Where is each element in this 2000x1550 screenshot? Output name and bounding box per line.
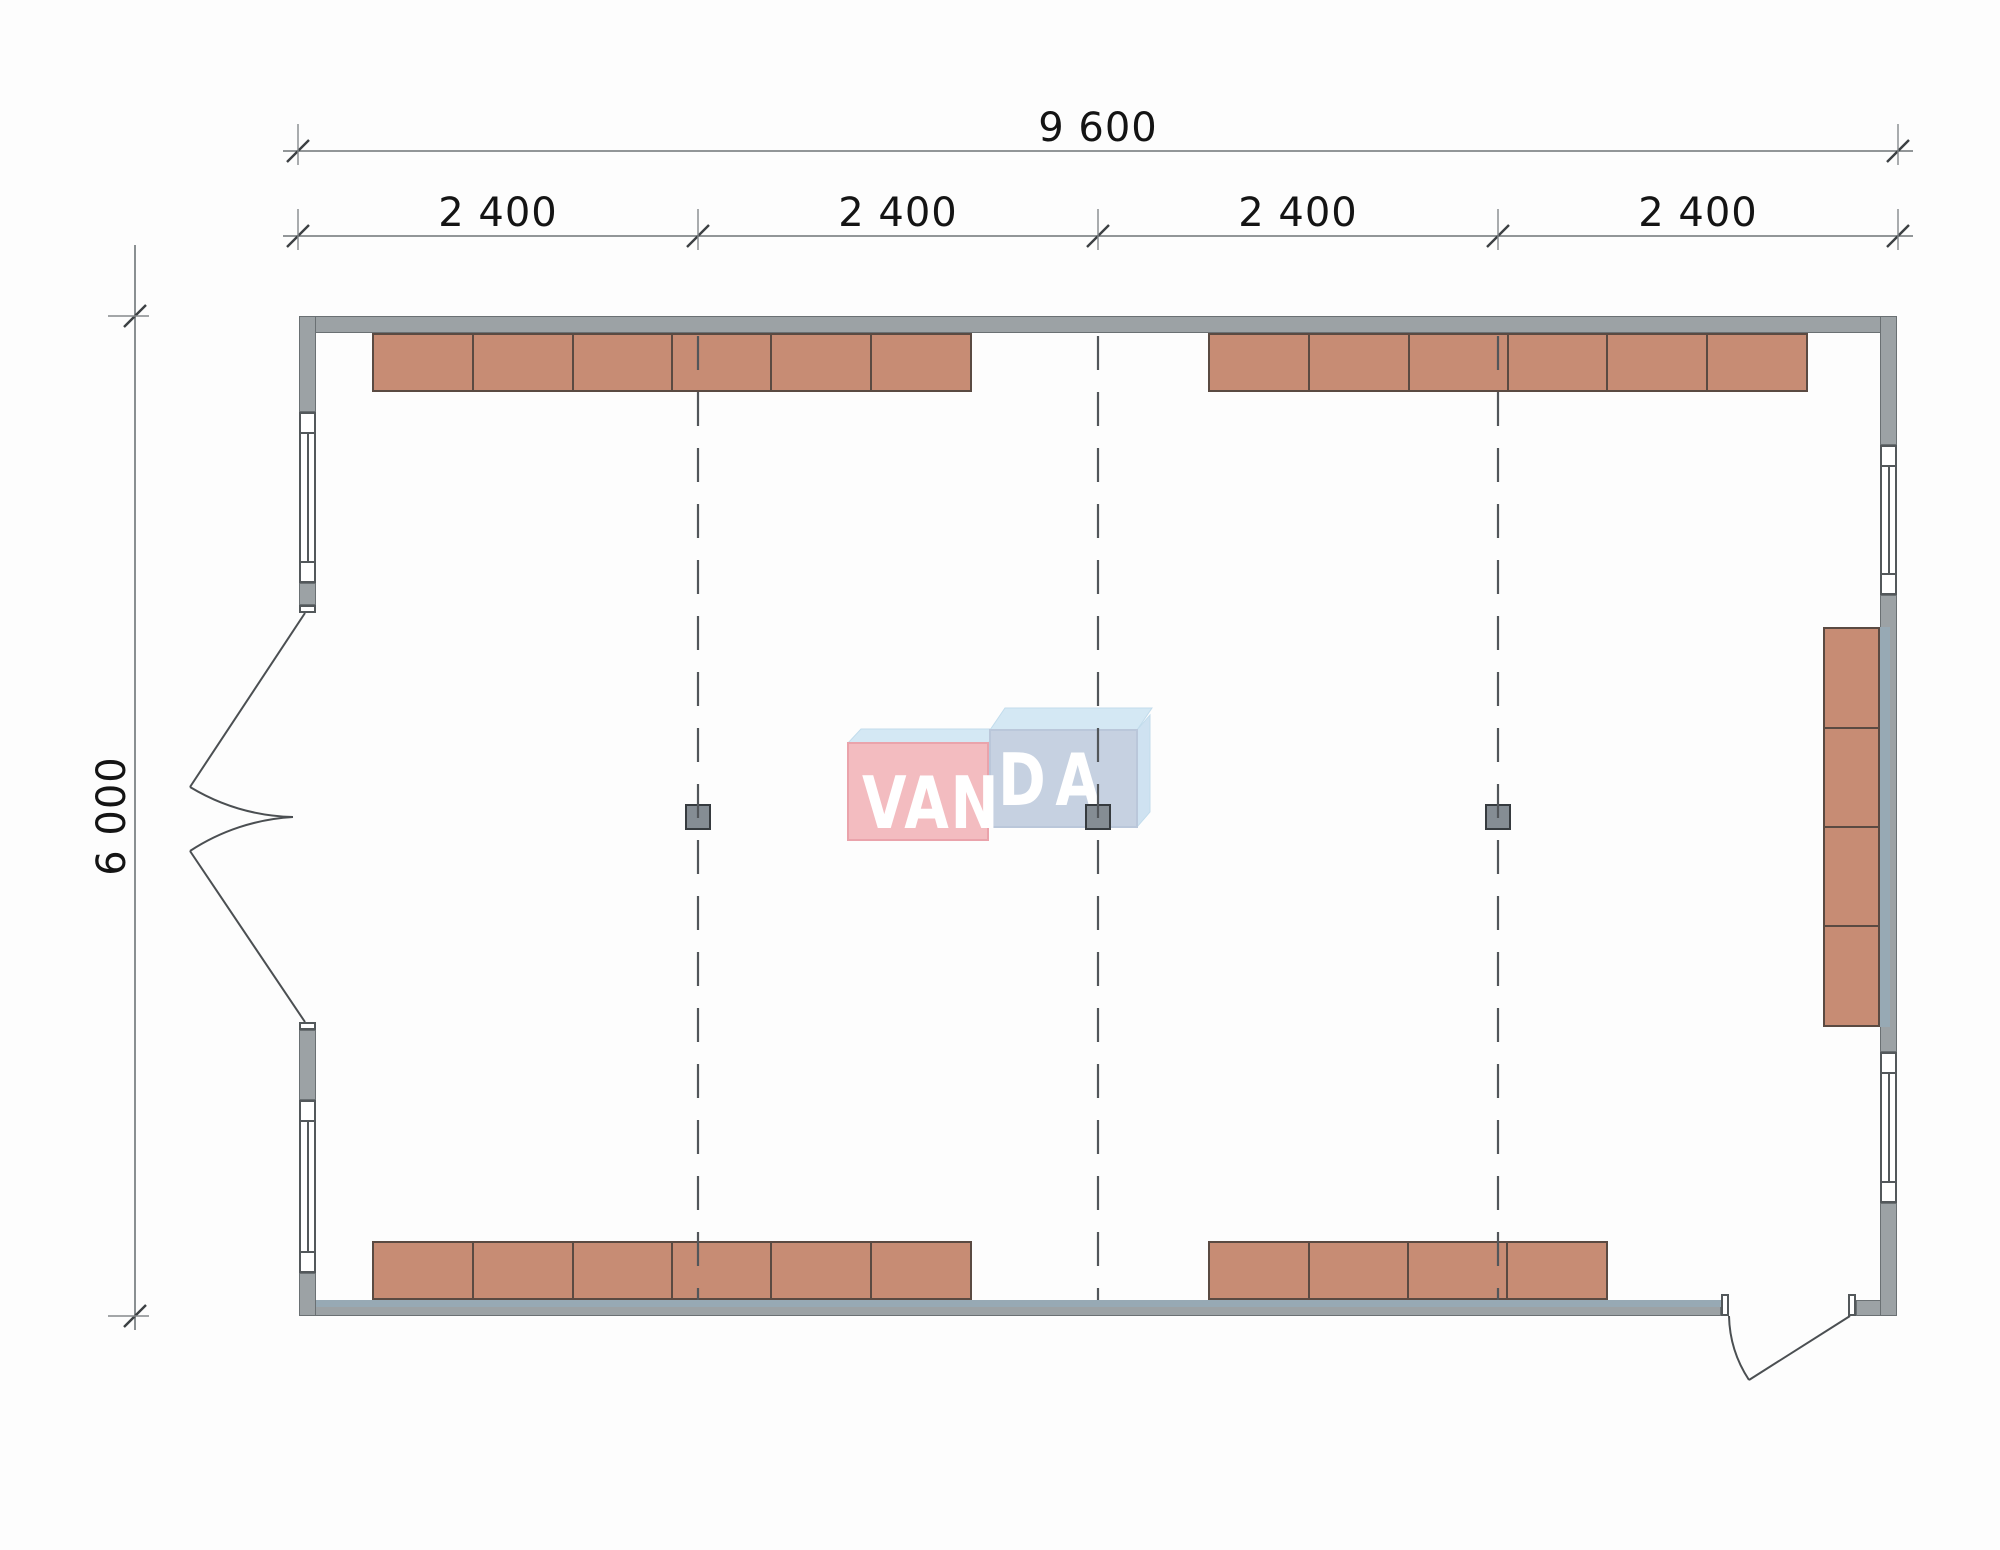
wall-inner-lining: [316, 1300, 1721, 1307]
dimension-label-bay-2: 2 400: [788, 193, 1008, 233]
door-jamb: [299, 605, 316, 613]
cabinet-divider: [1706, 335, 1708, 390]
cabinet-run-top-left: [372, 333, 972, 392]
window-glazing: [1888, 467, 1890, 573]
double-door-upper-arc: [190, 787, 293, 817]
wall-segment: [299, 583, 316, 605]
window-sash: [301, 561, 314, 563]
cabinet-divider: [1408, 335, 1410, 390]
cabinet-divider: [671, 335, 673, 390]
door-jamb: [299, 1022, 316, 1030]
watermark-blue-box-top: [990, 708, 1152, 730]
cabinet-divider: [1825, 727, 1878, 729]
cabinet-divider: [1606, 335, 1608, 390]
single-door-leaf: [1749, 1316, 1850, 1380]
window-sash: [1882, 1181, 1895, 1183]
cabinet-divider: [572, 335, 574, 390]
single-door-arc: [1729, 1316, 1749, 1380]
cabinet-divider: [472, 1243, 474, 1298]
cabinet-divider: [671, 1243, 673, 1298]
dimension-label-bay-3: 2 400: [1188, 193, 1408, 233]
watermark-text-van: VAN: [862, 767, 1000, 839]
door-jamb: [1848, 1294, 1856, 1316]
cabinet-divider: [472, 335, 474, 390]
wall-segment: [299, 1273, 316, 1316]
cabinet-divider: [1506, 1243, 1508, 1298]
structural-column: [1485, 804, 1511, 830]
wall-inner-lining: [1880, 627, 1890, 1027]
cabinet-run-right-wall: [1823, 627, 1880, 1027]
dimension-label-overall-height: 6 000: [92, 706, 132, 926]
wall-segment: [299, 316, 1897, 333]
double-door-lower-leaf: [190, 851, 305, 1022]
dimension-label-bay-4: 2 400: [1588, 193, 1808, 233]
watermark-blue-box-side: [1137, 715, 1150, 827]
wall-segment: [1880, 316, 1897, 445]
double-door-lower-arc: [190, 817, 293, 851]
door-jamb: [1721, 1294, 1729, 1316]
window: [299, 1100, 316, 1273]
cabinet-divider: [1308, 335, 1310, 390]
cabinet-divider: [1407, 1243, 1409, 1298]
cabinet-divider: [1825, 826, 1878, 828]
dimension-witness-marks: [108, 124, 1898, 1316]
window: [1880, 445, 1897, 595]
window: [299, 412, 316, 583]
cabinet-run-bottom-right: [1208, 1241, 1608, 1300]
floor-plan-canvas: VAN DA: [0, 0, 2000, 1550]
wall-segment: [299, 1030, 316, 1100]
window-sash: [301, 1251, 314, 1253]
structural-column: [685, 804, 711, 830]
wall-segment: [299, 316, 316, 412]
structural-column: [1085, 804, 1111, 830]
cabinet-run-top-right: [1208, 333, 1808, 392]
cabinet-divider: [1825, 925, 1878, 927]
window: [1880, 1052, 1897, 1203]
double-door-upper-leaf: [190, 613, 305, 787]
wall-segment: [1880, 1203, 1897, 1316]
cabinet-divider: [572, 1243, 574, 1298]
watermark-pink-box-top: [848, 729, 1001, 743]
cabinet-divider: [1308, 1243, 1310, 1298]
cabinet-divider: [870, 1243, 872, 1298]
dimension-label-overall-width: 9 600: [988, 108, 1208, 148]
window-glazing: [307, 1122, 309, 1251]
dimension-label-bay-1: 2 400: [388, 193, 608, 233]
window-glazing: [307, 434, 309, 561]
cabinet-divider: [770, 1243, 772, 1298]
cabinet-divider: [870, 335, 872, 390]
cabinet-divider: [1507, 335, 1509, 390]
window-sash: [1882, 573, 1895, 575]
cabinet-divider: [770, 335, 772, 390]
cabinet-run-bottom-left: [372, 1241, 972, 1300]
window-glazing: [1888, 1074, 1890, 1181]
